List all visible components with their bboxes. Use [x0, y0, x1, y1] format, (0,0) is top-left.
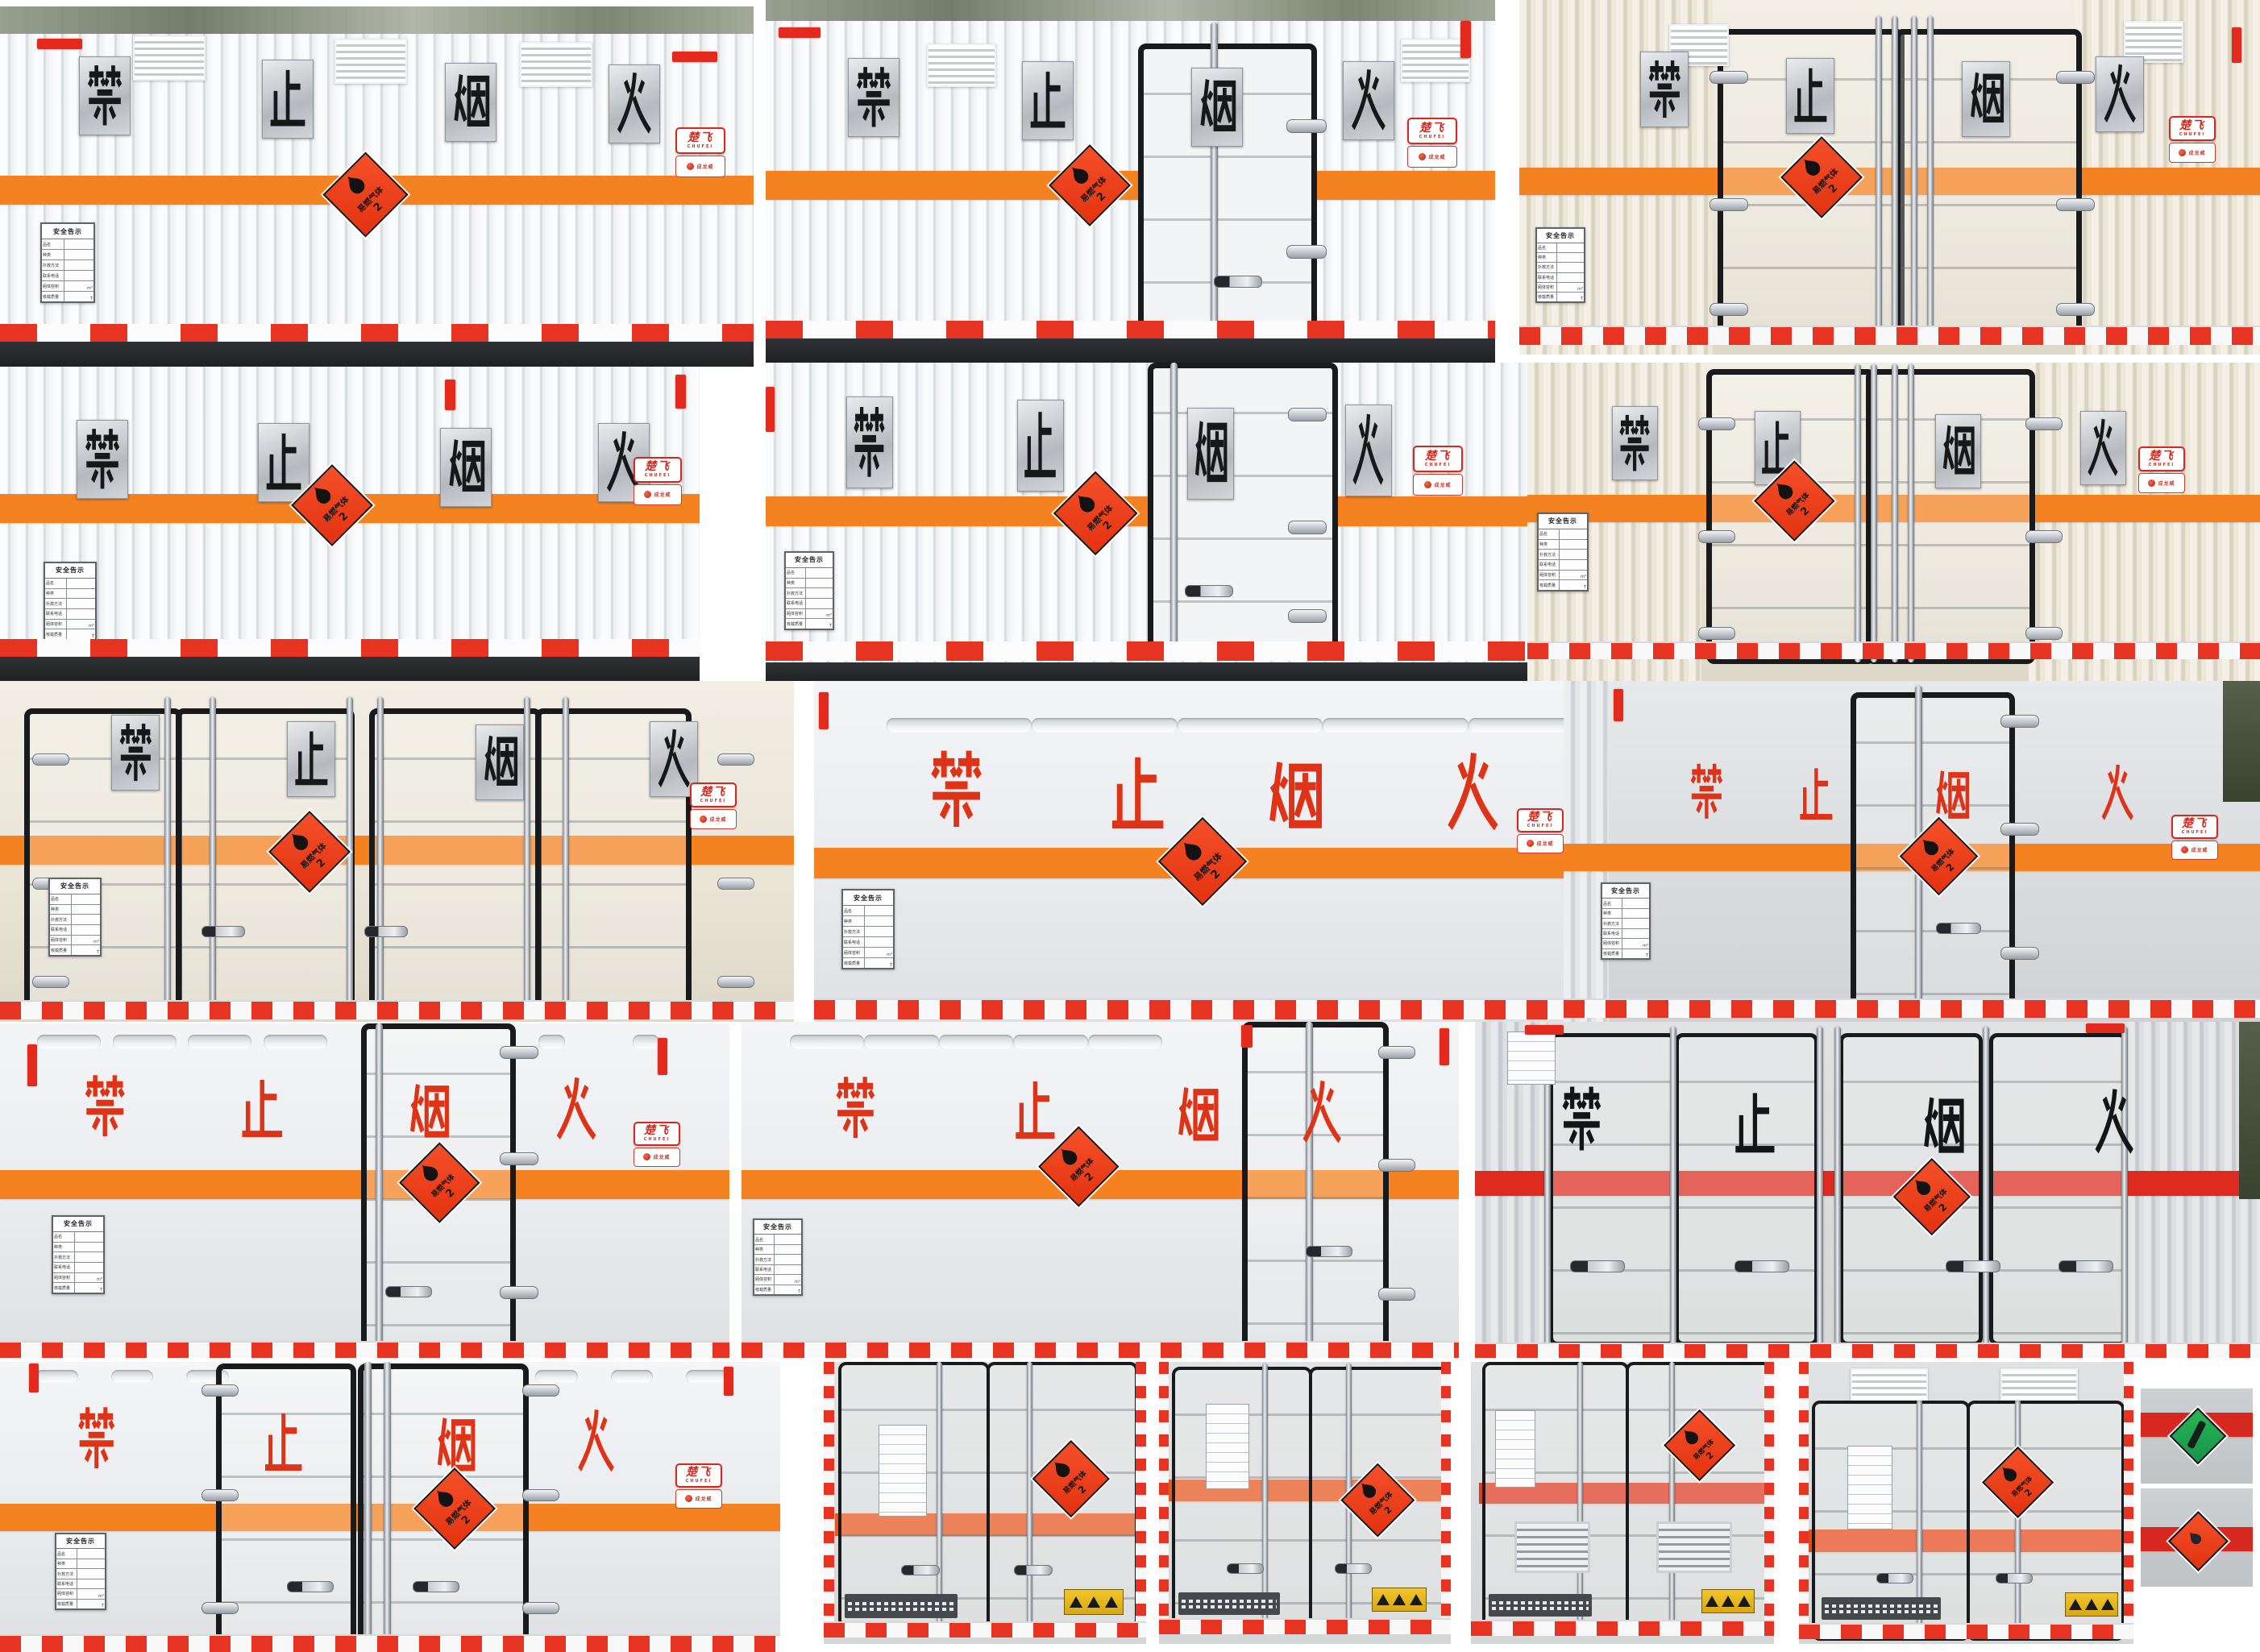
- info-list-plate: [1847, 1446, 1892, 1530]
- door-hinge-latch: [500, 1046, 538, 1059]
- safety-row: 厢体容积m³: [1539, 570, 1587, 580]
- safety-row-label: 联系电话: [1539, 560, 1560, 570]
- door-lock-rod: [2121, 1027, 2128, 1352]
- brand-badge: 楚飞CHUFEI成龙威: [2138, 446, 2185, 493]
- gas-cylinder-icon: [2187, 1420, 2206, 1449]
- safety-row-label: 扑救方法: [843, 927, 865, 936]
- brand-main: 楚飞CHUFEI: [2171, 815, 2218, 839]
- placard-class-number: 2: [1083, 1171, 1096, 1184]
- striped-rear-bumper: [1799, 1623, 2133, 1639]
- door-lock-rod: [1911, 16, 1917, 338]
- safety-row-value: [1557, 273, 1584, 282]
- photo-side-panel-corrugated-1: 禁止烟火易燃气体2安全告示品名种类扑救方法联系电话厢体容积m³核载质量T楚飞CH…: [0, 6, 754, 367]
- sub-brand-name: 成龙威: [1428, 153, 1445, 160]
- safety-row: 联系电话: [53, 1262, 103, 1272]
- placard-class-number: 2: [315, 857, 328, 870]
- safety-row-value: [865, 906, 893, 915]
- sub-brand: 成龙威: [2171, 841, 2218, 860]
- safety-row-label: 核载质量: [1537, 293, 1557, 301]
- door-hinge-latch: [2000, 947, 2039, 960]
- door-lock-rod: [1669, 1362, 1675, 1628]
- warning-char-zhi: 止: [1726, 1083, 1783, 1165]
- volume-unit: m³: [98, 1594, 104, 1599]
- warning-char-yan: 烟: [1187, 408, 1234, 500]
- sub-brand: 成龙威: [1407, 146, 1457, 168]
- warning-char-huo: 火: [570, 1402, 623, 1481]
- door-hinge-latch: [717, 878, 754, 890]
- sub-brand: 成龙威: [2138, 473, 2185, 493]
- reflective-edge-strip: [1764, 1362, 1774, 1621]
- flammable-gas-placard: 易燃气体2: [1161, 820, 1241, 900]
- door-lock-rod: [1834, 1027, 1841, 1352]
- brand-name: 楚飞: [688, 132, 713, 143]
- door-hinge-latch: [201, 1384, 239, 1397]
- volume-unit: m³: [826, 613, 832, 618]
- volume-unit: m³: [795, 1280, 800, 1285]
- striped-rear-bumper: [1159, 1618, 1451, 1634]
- warning-char-huo: 火: [609, 64, 660, 143]
- jin-glyph: [1687, 760, 1726, 824]
- safety-row: 厢体容积m³: [754, 1274, 801, 1284]
- flammable-gas-placard: 易燃气体2: [293, 467, 368, 541]
- door-handle: [1306, 1246, 1352, 1257]
- safety-row-label: 联系电话: [53, 1263, 75, 1272]
- door-hinge-latch: [1710, 71, 1748, 84]
- brand-badge: 楚飞CHUFEI成龙威: [2169, 116, 2216, 163]
- door-handle: [385, 1286, 432, 1297]
- safety-row: 联系电话: [786, 598, 833, 608]
- safety-row-label: 联系电话: [42, 271, 64, 280]
- safety-row: 厢体容积m³: [50, 935, 100, 945]
- placard-face: 易燃气体2: [1971, 1435, 2062, 1526]
- door-lock-rod: [377, 697, 384, 1010]
- volume-unit: m³: [93, 940, 99, 944]
- safety-row-value: [72, 905, 100, 915]
- brand-badge: 楚飞CHUFEI成龙威: [1413, 446, 1463, 496]
- door-hinge-latch: [717, 976, 754, 988]
- striped-rear-bumper: [1527, 641, 2260, 659]
- door-lock-rod: [1170, 363, 1178, 661]
- safety-row-label: 厢体容积: [50, 936, 72, 945]
- info-list-plate: [1206, 1404, 1249, 1489]
- louver-vent: [927, 44, 996, 87]
- safety-row-label: 种类: [843, 916, 865, 926]
- embossed-vent-row: [37, 1035, 327, 1049]
- brand-name: 楚飞: [686, 1467, 712, 1478]
- brand-name: 楚飞: [644, 1125, 670, 1136]
- safety-row: 联系电话: [45, 608, 95, 619]
- safety-title: 安全告示: [1537, 229, 1584, 243]
- door-hinge-latch: [1288, 609, 1327, 623]
- sub-brand: 成龙威: [690, 809, 737, 829]
- door-hinge-latch: [1286, 119, 1327, 133]
- warning-char-jin: 禁: [1640, 52, 1689, 127]
- sub-brand-name: 成龙威: [696, 163, 713, 170]
- safety-row-value: T: [1557, 293, 1584, 301]
- door-handle: [1946, 1260, 2000, 1272]
- warning-char-zhi: 止: [287, 721, 335, 797]
- safety-row-label: 联系电话: [56, 1579, 77, 1588]
- red-reflector: [1614, 689, 1623, 721]
- safety-row-value: [67, 589, 95, 599]
- safety-row-value: [1560, 540, 1587, 550]
- huo-glyph: [1348, 66, 1390, 135]
- jin-glyph: [1616, 411, 1653, 476]
- warning-triangle-plate: [1372, 1588, 1427, 1612]
- company-sticker: [1489, 1594, 1592, 1617]
- photo-small-rear-3: 易燃气体2: [1471, 1362, 1774, 1644]
- warning-char-huo: 火: [547, 1070, 605, 1149]
- safety-row-value: [72, 894, 100, 904]
- safety-row-value: [72, 915, 100, 924]
- safety-row: 品名: [45, 579, 95, 588]
- triangle-icon: [1087, 1596, 1100, 1608]
- flammable-gas-placard: 易燃气体2: [1051, 147, 1125, 221]
- photo-placard-samples: [2141, 1380, 2253, 1588]
- sub-brand-logo-icon: [2181, 846, 2188, 853]
- photo-side-panel-with-door-2: 禁止烟火易燃气体2安全告示品名种类扑救方法联系电话厢体容积m³核载质量T楚飞CH…: [766, 363, 1527, 681]
- safety-row-label: 联系电话: [1602, 929, 1622, 938]
- safety-notice-plate: 安全告示品名种类扑救方法联系电话厢体容积m³核载质量T: [1535, 227, 1585, 303]
- triangle-icon: [1393, 1594, 1406, 1605]
- company-sticker: [1822, 1597, 1941, 1620]
- warning-char-zhi: 止: [1793, 760, 1839, 831]
- safety-row: 厢体容积m³: [56, 1588, 105, 1598]
- door-lock-rod: [1927, 16, 1934, 338]
- door-hinge-latch: [1378, 1046, 1415, 1059]
- sub-brand-logo-icon: [2148, 479, 2155, 487]
- safety-row-value: [75, 1243, 103, 1252]
- photo-rear-doors-red-text: 禁止烟火易燃气体2安全告示品名种类扑救方法联系电话厢体容积m³核载质量T楚飞CH…: [0, 1362, 780, 1652]
- safety-row-value: m³: [67, 620, 95, 629]
- door-lock-rod: [563, 697, 569, 1010]
- photo-side-panel-door-red-text-1: 禁止烟火易燃气体2安全告示品名种类扑救方法联系电话厢体容积m³核载质量T楚飞CH…: [1564, 681, 2260, 1022]
- sub-brand-logo-icon: [685, 1495, 692, 1502]
- brand-name: 楚飞: [1425, 450, 1451, 462]
- red-reflector: [658, 1038, 667, 1075]
- safety-row: 联系电话: [843, 936, 893, 947]
- safety-row-value: [75, 1263, 103, 1272]
- safety-row-label: 核载质量: [786, 619, 806, 629]
- flammable-gas-placard: 易燃气体2: [1666, 1412, 1730, 1476]
- chassis-strip: [766, 662, 1527, 681]
- safety-row-label: 品名: [1537, 243, 1557, 252]
- jin-glyph: [832, 1073, 879, 1144]
- placard-class-number: 2: [1076, 1484, 1087, 1495]
- vent-slot: [611, 1370, 654, 1383]
- safety-rows: 品名种类扑救方法联系电话厢体容积m³核载质量T: [56, 1549, 105, 1608]
- photo-rear-panel-red-text: 禁止烟火易燃气体2安全告示品名种类扑救方法联系电话厢体容积m³核载质量T楚飞CH…: [814, 681, 1628, 1022]
- safety-rows: 品名种类扑救方法联系电话厢体容积m³核载质量T: [1539, 529, 1587, 590]
- reflector-sill: [766, 321, 1495, 338]
- door-hinge-latch: [1698, 530, 1735, 543]
- red-reflector: [1241, 1025, 1253, 1048]
- safety-title: 安全告示: [1539, 514, 1587, 529]
- safety-row-value: [1622, 909, 1649, 918]
- safety-row-value: T: [1560, 580, 1587, 590]
- safety-rows: 品名种类扑救方法联系电话厢体容积m³核载质量T: [843, 906, 893, 968]
- warning-char-huo: 火: [2080, 411, 2126, 485]
- safety-row-label: 扑救方法: [42, 260, 64, 270]
- door-hinge-latch: [1286, 245, 1327, 259]
- door-hinge-latch: [1698, 417, 1735, 430]
- safety-title: 安全告示: [786, 553, 833, 568]
- vent-slot: [1323, 718, 1468, 733]
- brand-badge: 楚飞CHUFEI成龙威: [634, 1122, 680, 1167]
- door-handle: [201, 926, 245, 937]
- safety-title: 安全告示: [53, 1217, 103, 1232]
- safety-row-label: 品名: [50, 894, 72, 904]
- warning-char-zhi: 止: [1786, 58, 1834, 134]
- triangle-icon: [2069, 1599, 2082, 1610]
- safety-row-value: [1560, 529, 1587, 539]
- brand-main: 楚飞CHUFEI: [634, 1122, 680, 1146]
- embossed-vent-row: [538, 1035, 659, 1049]
- placard-face: 易燃气体2: [1768, 123, 1872, 228]
- door-lock-rod: [164, 697, 171, 1010]
- safety-title: 安全告示: [45, 563, 95, 579]
- safety-row: 种类: [45, 588, 95, 599]
- placard-face: 易燃气体2: [1652, 1398, 1743, 1489]
- vent-slot: [686, 1370, 729, 1383]
- red-reflector: [27, 1044, 37, 1086]
- warning-char-yan: 烟: [1935, 414, 1981, 488]
- triangle-icon: [2101, 1599, 2114, 1610]
- volume-unit: m³: [1643, 944, 1648, 948]
- door-handle: [1014, 1565, 1053, 1575]
- placard-class-number: 2: [338, 511, 351, 524]
- mass-unit: T: [1584, 585, 1586, 590]
- safety-row: 扑救方法: [45, 598, 95, 608]
- placard-face: 易燃气体2: [1741, 447, 1843, 550]
- door-lock-rod: [1983, 1027, 1989, 1352]
- sub-brand-name: 成龙威: [2191, 846, 2208, 853]
- foliage-sliver: [2223, 681, 2260, 802]
- warning-char-jin: 禁: [846, 396, 893, 488]
- triangle-icon: [1738, 1596, 1751, 1607]
- brand-latin: CHUFEI: [700, 799, 727, 803]
- door-hinge-latch: [2025, 417, 2063, 430]
- photo-small-rear-4: 易燃气体2: [1799, 1362, 2133, 1644]
- safety-row-label: 厢体容积: [45, 620, 67, 629]
- info-list-plate: [1507, 1031, 1556, 1085]
- photo-side-panel-corrugated-2: 禁止烟火易燃气体2安全告示品名种类扑救方法联系电话厢体容积m³核载质量T楚飞CH…: [0, 367, 700, 681]
- safety-row-label: 扑救方法: [1539, 550, 1560, 559]
- safety-row-label: 核载质量: [843, 958, 865, 968]
- door-hinge-latch: [717, 753, 754, 766]
- door-handle: [1996, 1573, 2033, 1584]
- red-reflector: [445, 380, 455, 410]
- safety-row: 种类: [1539, 539, 1587, 550]
- safety-row-label: 厢体容积: [754, 1275, 775, 1284]
- placard-class-number: 2: [1827, 183, 1840, 196]
- brand-main: 楚飞CHUFEI: [690, 782, 737, 807]
- reflective-edge-strip: [1799, 1362, 1809, 1633]
- placard-face: 易燃气体2: [1040, 458, 1148, 566]
- red-reflector: [724, 1367, 733, 1396]
- safety-notice-plate: 安全告示品名种类扑救方法联系电话厢体容积m³核载质量T: [44, 562, 97, 641]
- sticker-text-line: [1492, 1607, 1589, 1610]
- safety-row-label: 扑救方法: [1602, 919, 1622, 928]
- warning-char-jin: 禁: [1612, 406, 1658, 480]
- red-reflector: [675, 375, 686, 409]
- placard-face: [2161, 1399, 2232, 1470]
- placard-face: 易燃气体2: [1144, 803, 1257, 916]
- sub-brand-name: 成龙威: [695, 1495, 712, 1502]
- jin-glyph: [850, 402, 888, 484]
- vent-slot: [864, 1035, 938, 1049]
- safety-rows: 品名种类扑救方法联系电话厢体容积m³核载质量T: [53, 1232, 103, 1293]
- safety-row-label: 核载质量: [50, 945, 72, 955]
- safety-row-value: [1622, 919, 1649, 928]
- door-hinge-latch: [2056, 198, 2095, 211]
- brand-latin: CHUFEI: [2182, 830, 2208, 835]
- huo-glyph: [574, 1406, 618, 1477]
- safety-row: 扑救方法: [56, 1568, 105, 1578]
- sub-brand-name: 成龙威: [1536, 840, 1553, 847]
- safety-row-label: 种类: [1539, 540, 1560, 550]
- flammable-gas-placard: 易燃气体2: [1056, 474, 1132, 550]
- safety-row-label: 核载质量: [56, 1600, 77, 1608]
- flammable-gas-placard: 易燃气体2: [1041, 1128, 1113, 1201]
- warning-char-jin: 禁: [848, 58, 899, 137]
- cargo-door: [1242, 1022, 1389, 1358]
- door-hinge-latch: [1710, 198, 1748, 211]
- warning-char-zhi: 止: [262, 60, 314, 139]
- sticker-text-line: [848, 1602, 954, 1605]
- warning-char-yan: 烟: [1257, 749, 1331, 847]
- mass-unit: T: [100, 1288, 102, 1293]
- warning-char-jin: 禁: [77, 420, 128, 499]
- brand-badge: 楚飞CHUFEI成龙威: [1407, 118, 1457, 168]
- safety-row-label: 核载质量: [42, 292, 64, 301]
- sub-brand-logo-icon: [1424, 481, 1431, 488]
- vent-slot: [111, 1370, 154, 1383]
- sub-brand-logo-icon: [644, 491, 651, 498]
- cargo-door: [1482, 1362, 1629, 1631]
- safety-row: 扑救方法: [42, 259, 93, 270]
- flammable-gas-placard: 易燃气体2: [1902, 820, 1973, 890]
- safety-row-value: [775, 1255, 801, 1264]
- mass-unit: T: [1581, 297, 1583, 301]
- safety-row-label: 厢体容积: [1539, 571, 1560, 580]
- safety-row-label: 品名: [786, 568, 806, 578]
- safety-row: 种类: [56, 1559, 105, 1568]
- safety-row-value: [75, 1252, 103, 1262]
- placard-face: 易燃气体2: [1020, 1428, 1119, 1526]
- safety-notice-plate: 安全告示品名种类扑救方法联系电话厢体容积m³核载质量T: [52, 1215, 105, 1294]
- vent-slot: [790, 1035, 864, 1049]
- striped-rear-bumper: [1519, 326, 2260, 345]
- safety-row-label: 品名: [754, 1235, 775, 1243]
- sub-brand-logo-icon: [1419, 153, 1426, 160]
- safety-rows: 品名种类扑救方法联系电话厢体容积m³核载质量T: [42, 239, 93, 301]
- reflective-edge-strip: [824, 1362, 834, 1629]
- placard-class-number: 2: [1945, 862, 1956, 874]
- safety-row-label: 联系电话: [50, 925, 72, 935]
- door-lock-rod: [376, 1023, 383, 1351]
- brand-latin: CHUFEI: [688, 144, 714, 149]
- safety-rows: 品名种类扑救方法联系电话厢体容积m³核载质量T: [50, 894, 100, 955]
- warning-char-huo: 火: [1343, 61, 1394, 140]
- door-hinge-latch: [500, 1152, 538, 1165]
- safety-row-label: 核载质量: [754, 1285, 775, 1294]
- safety-row: 品名: [1602, 899, 1649, 907]
- chassis-strip: [766, 338, 1495, 363]
- safety-row: 品名: [843, 906, 893, 915]
- placard-face: 易燃气体2: [255, 798, 360, 903]
- zhi-glyph: [1021, 405, 1059, 487]
- brand-badge: 楚飞CHUFEI成龙威: [675, 1463, 722, 1509]
- warning-char-yan: 烟: [440, 428, 492, 507]
- door-handle: [1570, 1260, 1625, 1272]
- door-hinge-latch: [522, 1384, 559, 1397]
- placard-face: 易燃气体2: [386, 1129, 488, 1231]
- info-list-plate: [1495, 1410, 1535, 1488]
- door-lock-rod: [210, 697, 216, 1010]
- safety-row: 厢体容积m³: [53, 1272, 103, 1283]
- placard-face: 易燃气体2: [310, 139, 419, 248]
- flame-icon: [2181, 1524, 2211, 1554]
- door-handle: [1185, 585, 1233, 597]
- brand-latin: CHUFEI: [644, 1137, 671, 1142]
- safety-rows: 品名种类扑救方法联系电话厢体容积m³核载质量T: [45, 579, 95, 639]
- warning-char-jin: 禁: [70, 1399, 123, 1478]
- red-reflector: [766, 387, 775, 432]
- reflector-sill: [0, 639, 700, 657]
- safety-rows: 品名种类扑救方法联系电话厢体容积m³核载质量T: [786, 568, 833, 629]
- safety-row-value: [806, 588, 833, 598]
- safety-rows: 品名种类扑救方法联系电话厢体容积m³核载质量T: [1537, 243, 1584, 301]
- sub-brand-name: 成龙威: [709, 816, 726, 823]
- safety-row-label: 种类: [45, 589, 67, 599]
- safety-row: 核载质量T: [843, 957, 893, 968]
- flammable-gas-placard: 易燃气体2: [1756, 463, 1829, 535]
- vent-slot: [113, 1035, 177, 1049]
- vent-slot: [535, 1370, 578, 1383]
- brand-name: 楚飞: [1419, 122, 1445, 134]
- safety-row-value: [77, 1559, 105, 1568]
- safety-rows: 品名种类扑救方法联系电话厢体容积m³核载质量T: [1602, 899, 1649, 958]
- louver-vent: [2000, 1368, 2078, 1401]
- sub-brand: 成龙威: [675, 156, 725, 177]
- placard-class-number: 2: [1937, 1202, 1948, 1213]
- yan-glyph: [1191, 413, 1229, 495]
- door-lock-rod: [1817, 1027, 1823, 1352]
- red-reflector: [2232, 27, 2241, 63]
- safety-row: 种类: [786, 578, 833, 588]
- triangle-icon: [1070, 1596, 1082, 1608]
- safety-row: 扑救方法: [53, 1251, 103, 1262]
- placard-class-number: 2: [2023, 1488, 2034, 1498]
- safety-row-value: [775, 1245, 801, 1254]
- triangle-icon: [2085, 1599, 2098, 1610]
- safety-row: 种类: [50, 904, 100, 915]
- safety-row-value: T: [1622, 949, 1649, 958]
- louver-vent: [133, 35, 206, 81]
- safety-row-label: 品名: [1539, 529, 1560, 539]
- safety-notice-plate: 安全告示品名种类扑救方法联系电话厢体容积m³核载质量T: [48, 878, 102, 957]
- warning-char-jin: 禁: [827, 1069, 883, 1148]
- safety-row-value: T: [77, 1600, 105, 1608]
- safety-row: 种类: [53, 1242, 103, 1252]
- door-hinge-latch: [522, 1602, 559, 1614]
- door-lock-rod: [1892, 16, 1898, 338]
- flammable-placard-sample: [2170, 1513, 2223, 1566]
- safety-row-label: 种类: [50, 905, 72, 915]
- safety-row-value: [64, 239, 93, 249]
- safety-row: 核载质量T: [50, 944, 100, 955]
